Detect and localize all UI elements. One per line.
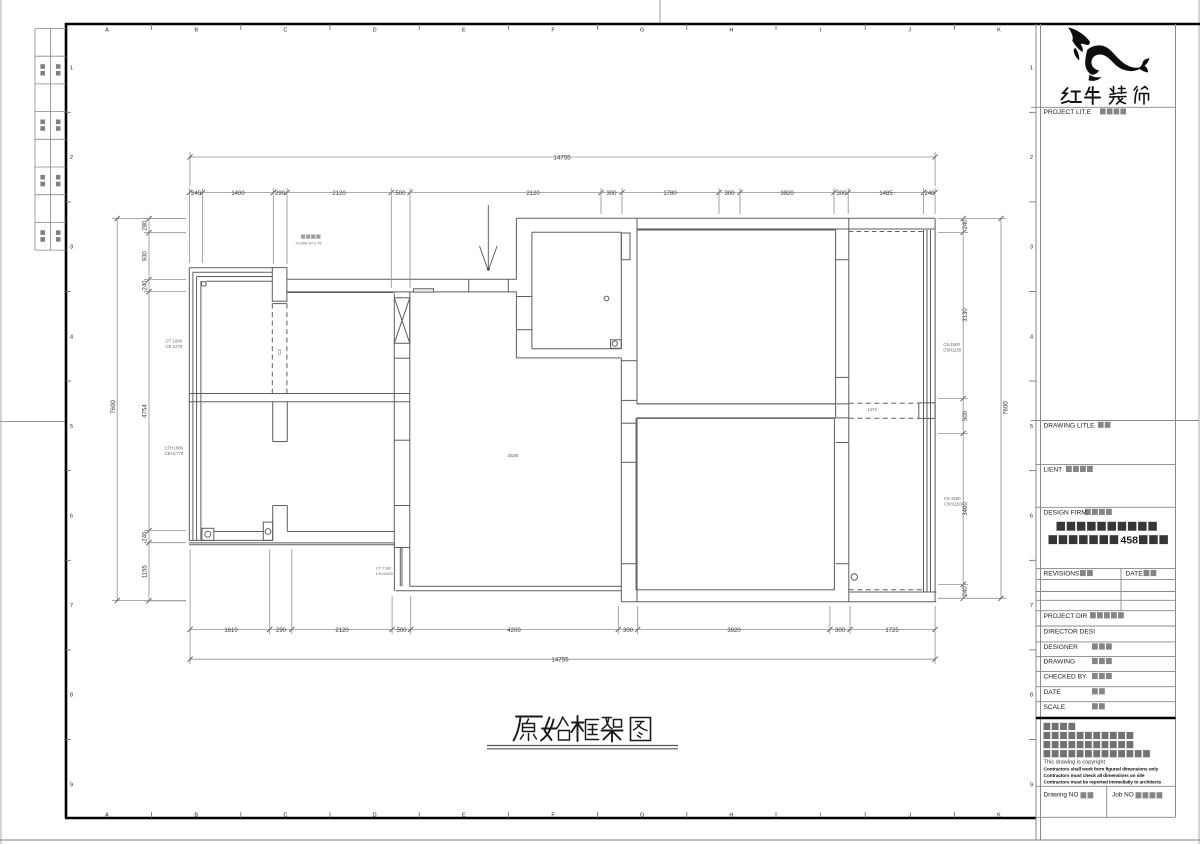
svg-text:240: 240 [924,191,935,197]
svg-text:3920: 3920 [727,628,741,634]
svg-text:300: 300 [835,628,846,634]
svg-text:5: 5 [70,424,73,430]
svg-text:240: 240 [143,531,149,542]
svg-text:C2: C2 [277,349,282,355]
svg-text:C: C [283,813,287,819]
svg-text:500: 500 [963,410,969,421]
svg-text:C5H1150: C5H1150 [944,501,962,506]
svg-text:1400: 1400 [231,191,245,197]
svg-text:Contractors must check all dim: Contractors must check all dimensions on… [1044,773,1145,779]
svg-text:500: 500 [396,628,407,634]
svg-text:CH=2400: CH=2400 [376,571,394,576]
svg-text:C5-1500: C5-1500 [944,496,961,501]
svg-text:14755: 14755 [553,154,571,161]
svg-text:DIRECTOR DESI: DIRECTOR DESI [1044,628,1096,635]
svg-text:J: J [908,28,911,34]
svg-text:E: E [462,28,466,34]
svg-text:DRAWING LITLE: DRAWING LITLE [1044,423,1096,430]
svg-text:CT 1006: CT 1006 [166,339,183,344]
svg-text:1155: 1155 [143,565,149,579]
svg-text:K: K [997,28,1001,34]
svg-text:458: 458 [1121,535,1139,547]
svg-text:+0.000 H=2.75: +0.000 H=2.75 [295,241,322,246]
svg-text:2120: 2120 [526,191,540,197]
svg-text:DATE: DATE [1126,571,1144,578]
svg-text:1780: 1780 [663,191,677,197]
svg-text:DATE: DATE [1044,689,1062,696]
svg-text:1485: 1485 [879,191,893,197]
svg-text:240: 240 [143,280,149,291]
svg-text:C5-1500: C5-1500 [943,342,960,347]
svg-text:300: 300 [623,628,634,634]
svg-text:3: 3 [70,245,73,251]
svg-text:E: E [462,813,466,819]
svg-text:PROJECT LIT.E: PROJECT LIT.E [1044,109,1092,116]
svg-text:5: 5 [1030,424,1033,430]
svg-text:930: 930 [143,250,149,261]
svg-text:9: 9 [1030,782,1033,788]
svg-text:290: 290 [276,628,287,634]
svg-text:D: D [373,813,377,819]
svg-text:1610: 1610 [224,628,238,634]
svg-text:C: C [283,28,287,34]
svg-text:A: A [105,28,109,34]
svg-text:Contractors must be reported i: Contractors must be reported immediatly … [1044,779,1162,785]
svg-text:DESIGN FIRM: DESIGN FIRM [1044,510,1087,517]
svg-text:LIENT: LIENT [1044,467,1063,474]
svg-text:300: 300 [836,191,847,197]
svg-text:CE 1270: CE 1270 [166,344,183,349]
svg-text:B: B [194,28,198,34]
svg-text:CEH1770: CEH1770 [165,451,184,456]
svg-text:Drawing NO: Drawing NO [1044,792,1079,799]
svg-text:SCALE: SCALE [1044,704,1066,711]
svg-text:7: 7 [70,603,73,609]
svg-text:8: 8 [70,693,73,699]
svg-text:4: 4 [70,334,73,340]
svg-text:3920: 3920 [780,191,794,197]
svg-text:300: 300 [724,191,735,197]
svg-text:280: 280 [143,220,149,231]
svg-text:CHECKED BY: CHECKED BY [1044,674,1087,681]
svg-text:14755: 14755 [551,657,569,664]
svg-text:H: H [729,28,733,34]
svg-text:C5H1150: C5H1150 [943,347,961,352]
svg-text:K: K [997,813,1001,819]
svg-text:240: 240 [963,586,969,597]
svg-text:9: 9 [70,782,73,788]
svg-text:B: B [194,813,198,819]
svg-text:2120: 2120 [335,628,349,634]
svg-text:1: 1 [1030,66,1033,72]
svg-text:7600: 7600 [1003,401,1010,415]
svg-text:1725: 1725 [885,628,899,634]
svg-text:6: 6 [70,514,73,520]
svg-text:1274: 1274 [867,407,877,412]
svg-text:290: 290 [275,191,286,197]
svg-text:240: 240 [191,191,202,197]
svg-text:3130: 3130 [963,308,969,322]
svg-text:3: 3 [1030,245,1033,251]
svg-text:1: 1 [70,66,73,72]
svg-text:G: G [640,813,644,819]
svg-text:500: 500 [395,191,406,197]
svg-text:240: 240 [963,219,969,230]
svg-text:DESIGNER: DESIGNER [1044,644,1079,651]
svg-text:6: 6 [1030,514,1033,520]
svg-text:Job NO: Job NO [1112,792,1134,799]
svg-text:2: 2 [70,155,73,161]
svg-text:J: J [908,813,911,819]
svg-text:D: D [373,28,377,34]
svg-text:4200: 4200 [507,628,521,634]
svg-text:CT-7340: CT-7340 [376,566,392,571]
svg-text:A: A [105,813,109,819]
svg-text:H: H [729,813,733,819]
svg-text:8: 8 [1030,693,1033,699]
svg-text:PROJECT DIR: PROJECT DIR [1044,613,1088,620]
svg-text:7: 7 [1030,603,1033,609]
svg-text:2120: 2120 [332,191,346,197]
svg-text:This drawing is copyright: This drawing is copyright [1044,760,1106,766]
svg-text:Contractors shall work form fi: Contractors shall work form figured dime… [1044,766,1159,772]
svg-text:7600: 7600 [110,400,117,414]
svg-text:G: G [640,28,644,34]
svg-text:2: 2 [1030,155,1033,161]
svg-text:300: 300 [606,191,617,197]
svg-text:4: 4 [1030,334,1033,340]
svg-text:CTH1006: CTH1006 [165,446,184,451]
svg-text:2526: 2526 [508,453,519,458]
svg-text:4754: 4754 [143,404,149,418]
svg-text:DRAWING: DRAWING [1044,659,1076,666]
svg-text:3400: 3400 [963,502,969,516]
svg-text:REVISIONS: REVISIONS [1044,571,1081,578]
